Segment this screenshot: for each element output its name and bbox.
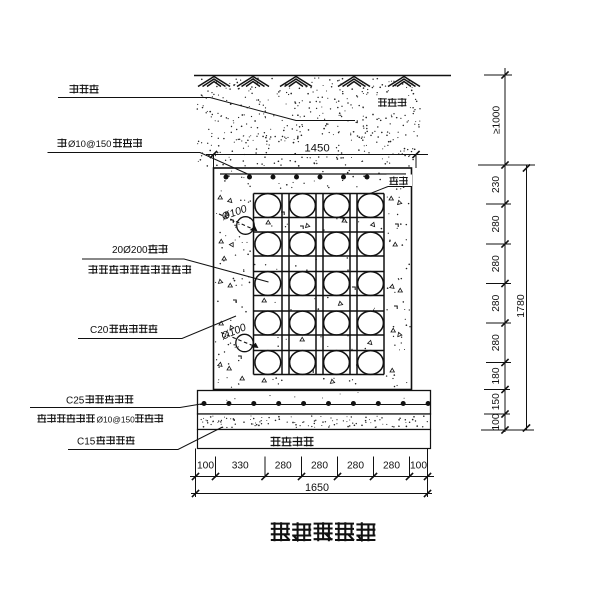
svg-text:C20: C20	[90, 325, 109, 336]
svg-text:≥1000: ≥1000	[492, 106, 503, 135]
svg-text:280: 280	[383, 461, 400, 472]
svg-text:230: 230	[491, 176, 502, 193]
svg-text:1450: 1450	[304, 143, 329, 155]
svg-text:Ø10@150: Ø10@150	[68, 139, 111, 150]
svg-text:100: 100	[410, 461, 427, 472]
svg-text:280: 280	[491, 334, 502, 351]
svg-text:100: 100	[197, 461, 214, 472]
svg-text:C15: C15	[77, 437, 96, 448]
svg-text:150: 150	[491, 393, 502, 410]
svg-text:C25: C25	[66, 396, 85, 407]
svg-text:180: 180	[491, 367, 502, 384]
svg-text:330: 330	[232, 461, 249, 472]
svg-text:1780: 1780	[515, 294, 527, 318]
svg-text:100: 100	[491, 413, 502, 430]
svg-text:280: 280	[491, 215, 502, 232]
svg-text:Ø10@150: Ø10@150	[97, 415, 136, 425]
svg-text:280: 280	[275, 461, 292, 472]
svg-text:280: 280	[311, 461, 328, 472]
svg-text:20Ø200: 20Ø200	[112, 245, 148, 256]
svg-text:1650: 1650	[305, 482, 329, 494]
svg-text:280: 280	[491, 294, 502, 311]
svg-text:280: 280	[491, 255, 502, 272]
svg-text:280: 280	[347, 461, 364, 472]
